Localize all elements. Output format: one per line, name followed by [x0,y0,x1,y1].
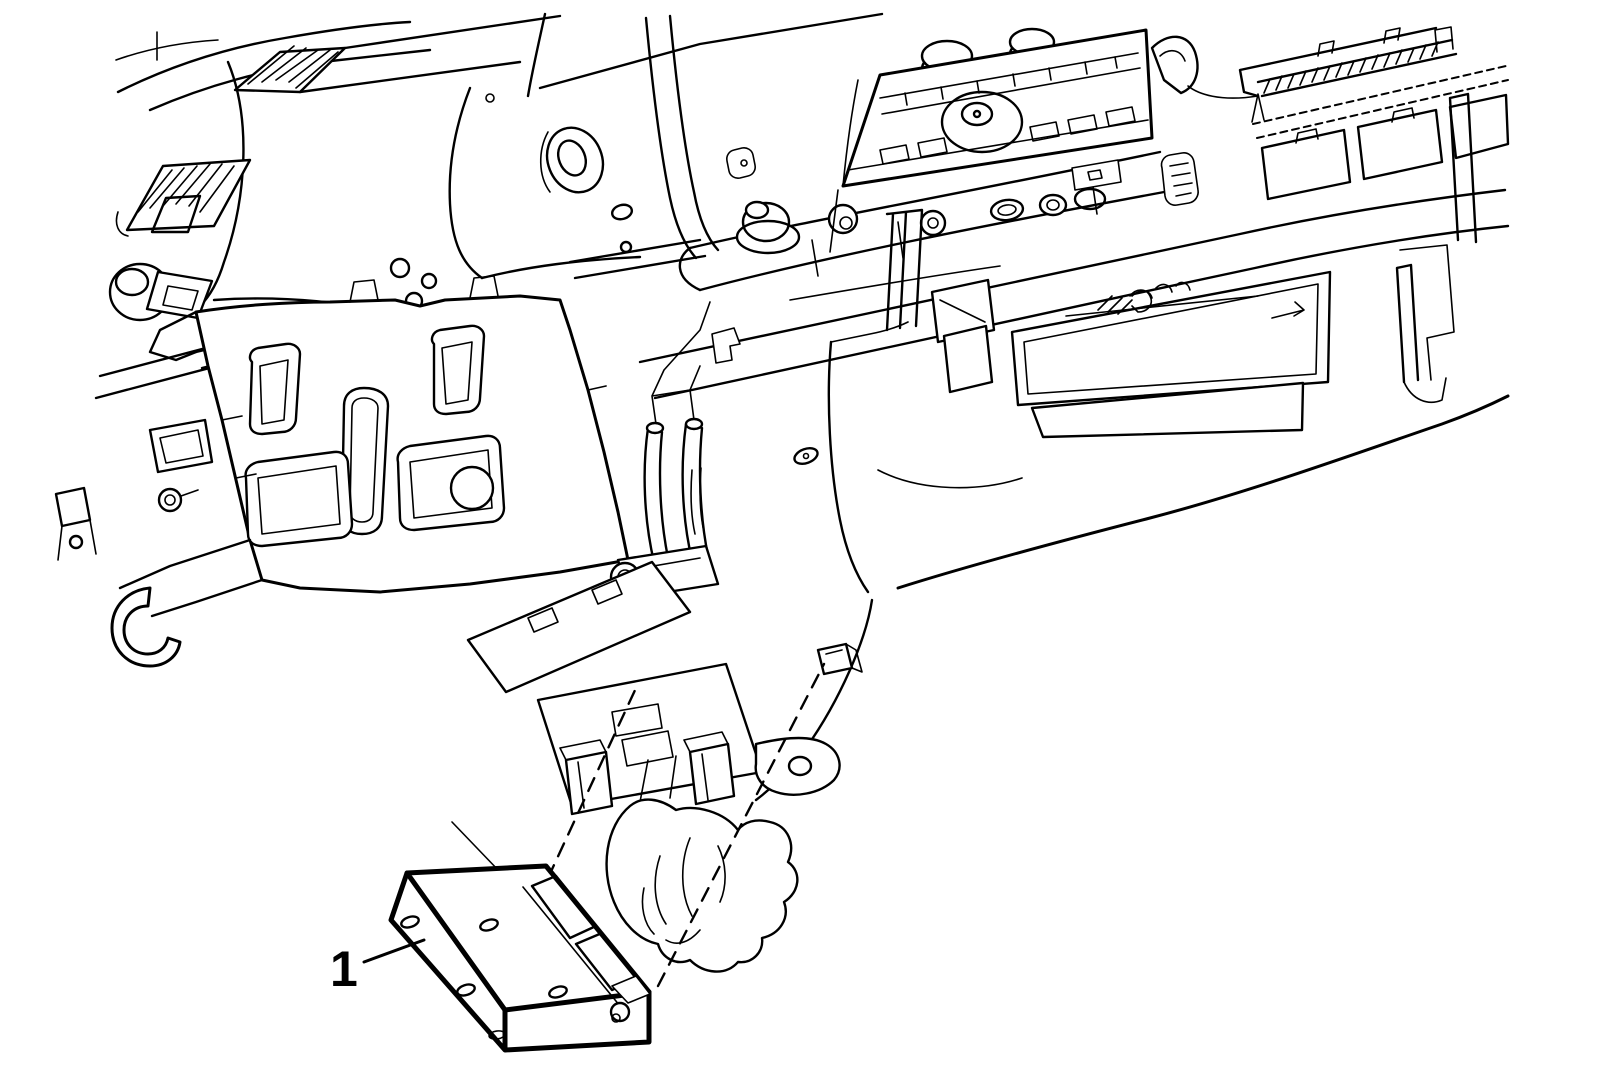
grille-outer-rail [1240,28,1436,96]
left-vent-endcap [116,212,128,236]
callout-label: 1 [330,941,358,997]
upper-plate [468,562,690,692]
rivet-dot [804,454,809,459]
tuner-knob-cap [962,103,992,125]
strap-top [647,423,663,433]
panel-dot [486,94,494,102]
defroster-grille [1188,27,1508,199]
control-bar-endcap [680,248,700,290]
instrument-panel-illustration: 1 [0,0,1600,1084]
module-screw-boss [456,982,476,997]
mount-links [652,302,710,424]
screw-hole [422,274,436,288]
panel-step-plate [944,326,992,392]
hood-end-line [528,14,545,96]
module-mounting-bracket [468,562,862,814]
aux-jack-outline [1161,153,1198,205]
pillar-band [646,18,696,258]
column-cover-left-edge [450,88,482,278]
panel-curve [878,470,1022,488]
retention-clip [690,744,734,804]
corner-clip-block [818,644,852,674]
carrier-lower-arm [120,540,262,616]
bezel-corner-flap [1152,37,1197,93]
carrier-left-box [150,420,212,472]
callout: 1 [330,940,424,997]
eject-button [1072,160,1121,190]
panel-dot [621,242,631,252]
headlamp-switch-cap [116,269,148,295]
carrier-outline [196,296,628,592]
panel-hole [611,203,634,222]
right-fold-lines [1397,265,1418,382]
screw-hole [391,259,409,277]
panel-left-edge [829,342,868,592]
left-fastener-plate [56,488,90,526]
boot-contour-line [452,822,500,872]
bracket-side-arm [756,738,840,795]
round-button [1040,195,1066,215]
mount-strap [645,428,668,562]
module-screw-boss [400,914,420,929]
center-panel [712,210,1022,800]
right-fold-foot [1404,378,1446,402]
mount-strap [683,424,708,560]
carrier-bolt [159,489,181,511]
retainer-hook [112,588,180,666]
vent-slot [1450,95,1508,158]
small-bracket [712,328,740,363]
carrier-circle-boss [451,467,493,509]
duct-lines [887,210,922,330]
vent-slot [1262,130,1350,199]
illustration-canvas: 1 [0,0,1600,1084]
round-button [921,211,945,235]
strap-top [686,419,702,429]
carrier-bolt-shaft [181,490,198,496]
beam-stub [570,240,705,278]
boot-outline [607,800,798,972]
column-end-cap [538,119,613,200]
retention-clip [566,752,612,814]
grille-spike [1252,94,1264,122]
left-fastener-rivet [70,536,82,548]
vent-slot [1358,110,1442,179]
panel-top-edge [831,322,908,342]
radio-head-unit [680,29,1198,298]
column-cover-bottom [482,257,640,278]
dash-pad-top-edge [540,14,882,88]
rivet-eye [792,445,819,466]
instrument-cluster-hood [116,14,560,312]
volume-knob-cap [746,202,768,218]
